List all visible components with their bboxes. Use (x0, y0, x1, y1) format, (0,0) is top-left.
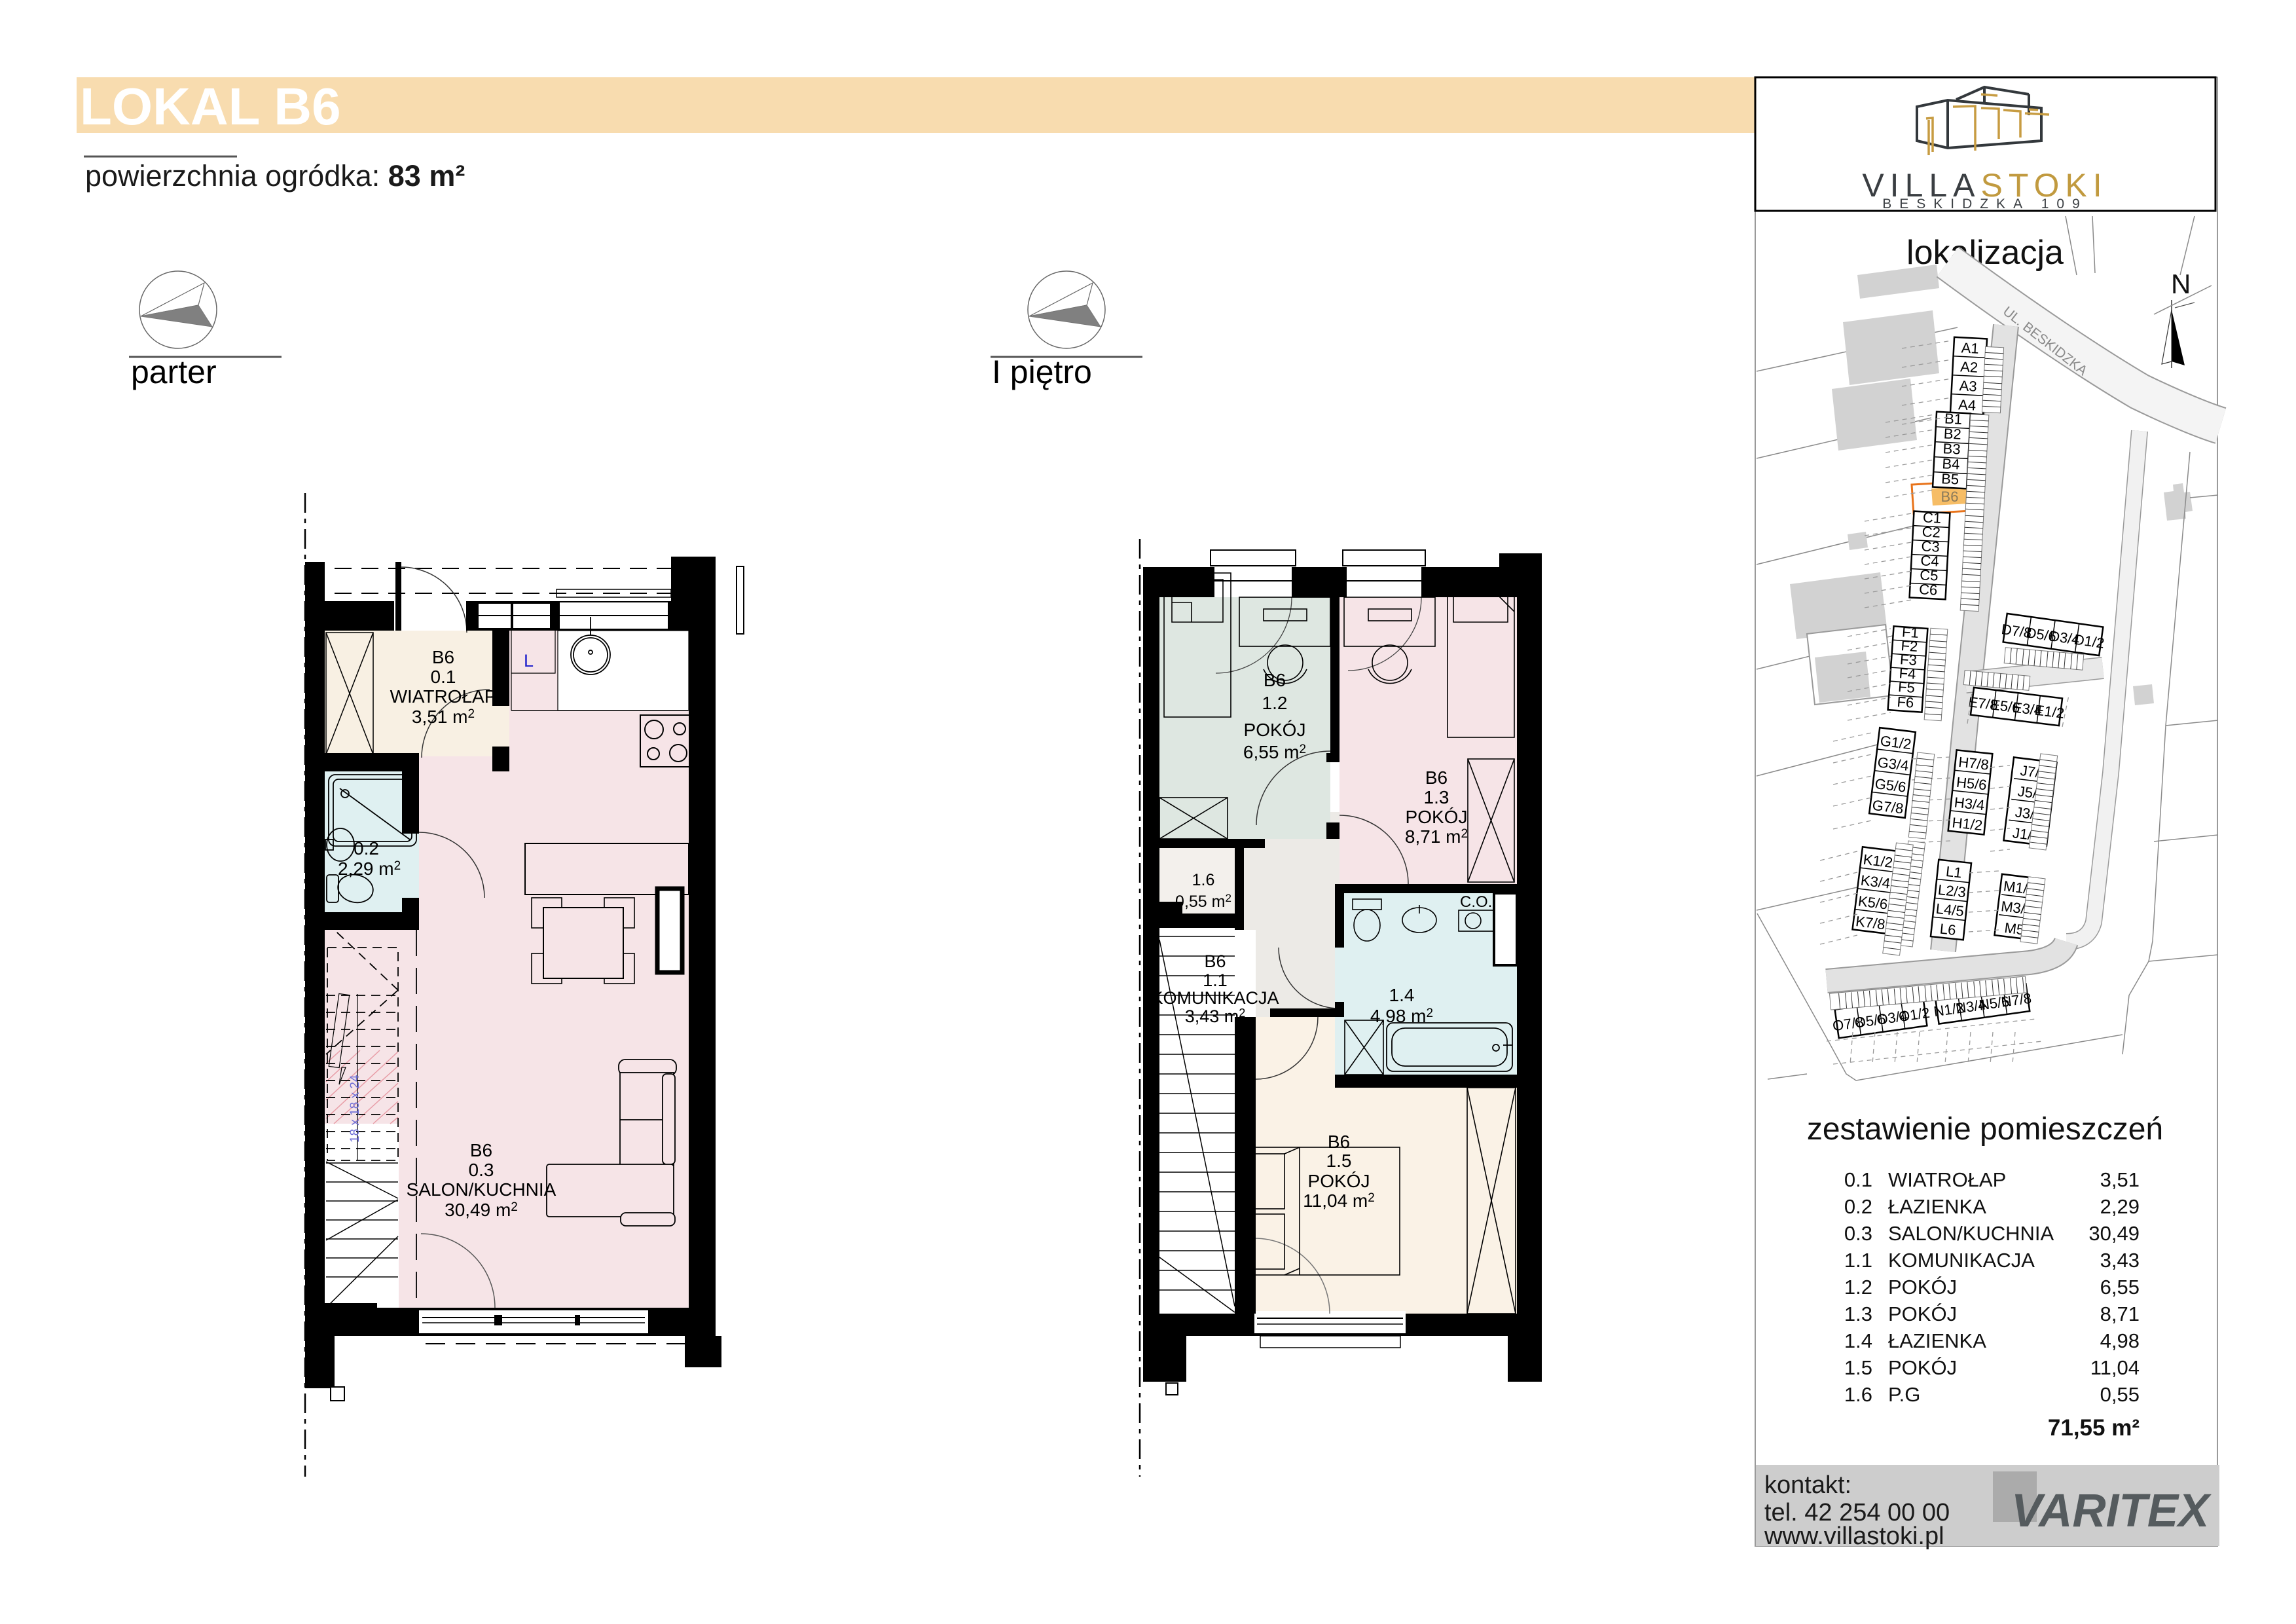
svg-text:1.1: 1.1 (1844, 1249, 1872, 1272)
svg-text:I piętro: I piętro (992, 354, 1092, 390)
svg-text:H3/4: H3/4 (1954, 794, 1986, 814)
svg-text:powierzchnia ogródka: 83 m²: powierzchnia ogródka: 83 m² (85, 159, 465, 193)
svg-text:6,55: 6,55 (2100, 1276, 2140, 1299)
svg-text:L2/3: L2/3 (1937, 881, 1967, 900)
svg-text:0.2: 0.2 (1844, 1195, 1872, 1218)
svg-text:1.5: 1.5 (1844, 1356, 1872, 1379)
svg-text:1.5: 1.5 (1326, 1151, 1352, 1171)
svg-text:ŁAZIENKA: ŁAZIENKA (1888, 1195, 1986, 1218)
svg-text:8,71 m2: 8,71 m2 (1405, 826, 1468, 847)
svg-text:B6: B6 (470, 1140, 492, 1160)
svg-text:3,51 m2: 3,51 m2 (412, 707, 475, 727)
svg-text:B6: B6 (1425, 767, 1448, 788)
svg-text:POKÓJ: POKÓJ (1888, 1302, 1957, 1325)
svg-text:1.6: 1.6 (1844, 1383, 1872, 1406)
svg-text:A3: A3 (1959, 377, 1977, 394)
svg-text:1.4: 1.4 (1389, 985, 1415, 1005)
svg-text:0.3: 0.3 (469, 1160, 494, 1180)
svg-text:L1: L1 (1945, 863, 1963, 881)
svg-text:B6: B6 (432, 647, 454, 667)
svg-text:0.3: 0.3 (1844, 1222, 1872, 1245)
svg-text:L6: L6 (1939, 921, 1957, 938)
svg-text:C.O.: C.O. (1460, 893, 1492, 911)
svg-text:18 x 18 x 24: 18 x 18 x 24 (348, 1075, 362, 1143)
svg-text:KOMUNIKACJA: KOMUNIKACJA (1888, 1249, 2035, 1272)
svg-text:1.1: 1.1 (1203, 970, 1228, 990)
svg-text:SALON/KUCHNIA: SALON/KUCHNIA (1888, 1222, 2054, 1245)
svg-text:0.1: 0.1 (431, 667, 456, 687)
svg-text:A1: A1 (1961, 339, 1979, 356)
svg-text:H1/2: H1/2 (1952, 814, 1984, 834)
svg-text:B5: B5 (1941, 470, 1959, 487)
svg-text:0.2: 0.2 (354, 838, 379, 858)
svg-text:1.6: 1.6 (1192, 871, 1215, 889)
svg-text:3,43: 3,43 (2100, 1249, 2140, 1272)
svg-text:1.2: 1.2 (1844, 1276, 1872, 1299)
svg-text:2,29: 2,29 (2100, 1195, 2140, 1218)
svg-text:4,98: 4,98 (2100, 1329, 2140, 1352)
svg-text:B6: B6 (1204, 951, 1226, 971)
svg-text:1.4: 1.4 (1844, 1329, 1872, 1352)
svg-text:B6: B6 (1941, 489, 1959, 505)
svg-text:3,43 m2: 3,43 m2 (1185, 1006, 1246, 1026)
svg-text:H7/8: H7/8 (1958, 754, 1990, 773)
svg-text:WIATROŁAP: WIATROŁAP (390, 686, 497, 707)
svg-text:F6: F6 (1897, 693, 1914, 711)
svg-text:11,04 m2: 11,04 m2 (1303, 1190, 1375, 1211)
svg-text:www.villastoki.pl: www.villastoki.pl (1764, 1522, 1944, 1550)
svg-text:ŁAZIENKA: ŁAZIENKA (1888, 1329, 1986, 1352)
svg-text:1.3: 1.3 (1424, 787, 1449, 807)
svg-text:POKÓJ: POKÓJ (1308, 1171, 1370, 1191)
svg-text:3,51: 3,51 (2100, 1168, 2140, 1191)
svg-text:P.G: P.G (1888, 1383, 1920, 1406)
svg-text:KOMUNIKACJA: KOMUNIKACJA (1151, 988, 1279, 1008)
svg-text:SALON/KUCHNIA: SALON/KUCHNIA (407, 1179, 556, 1200)
svg-text:BESKIDZKA 109: BESKIDZKA 109 (1882, 196, 2088, 212)
svg-text:0.1: 0.1 (1844, 1168, 1872, 1191)
svg-text:kontakt:: kontakt: (1764, 1471, 1851, 1499)
svg-text:L4/5: L4/5 (1935, 900, 1965, 919)
svg-text:8,71: 8,71 (2100, 1302, 2140, 1325)
svg-text:VARITEX: VARITEX (2011, 1485, 2212, 1537)
svg-text:L: L (524, 651, 534, 671)
svg-text:B6: B6 (1264, 670, 1286, 690)
svg-text:1.2: 1.2 (1262, 693, 1288, 713)
svg-text:C6: C6 (1919, 581, 1938, 598)
svg-text:B6: B6 (1328, 1132, 1350, 1152)
svg-text:71,55 m²: 71,55 m² (2048, 1415, 2140, 1441)
svg-text:30,49 m2: 30,49 m2 (445, 1200, 518, 1220)
svg-text:zestawienie pomieszczeń: zestawienie pomieszczeń (1807, 1112, 2163, 1147)
svg-text:POKÓJ: POKÓJ (1244, 720, 1306, 740)
svg-text:6,55 m2: 6,55 m2 (1243, 742, 1306, 762)
svg-text:POKÓJ: POKÓJ (1888, 1356, 1957, 1379)
svg-text:4,98 m2: 4,98 m2 (1370, 1006, 1433, 1026)
svg-text:A2: A2 (1960, 358, 1978, 375)
svg-text:POKÓJ: POKÓJ (1888, 1276, 1957, 1299)
svg-text:11,04: 11,04 (2090, 1356, 2140, 1379)
svg-text:1.3: 1.3 (1844, 1302, 1872, 1325)
svg-text:2,29 m2: 2,29 m2 (338, 858, 401, 879)
svg-text:0,55: 0,55 (2100, 1383, 2140, 1406)
svg-text:0,55 m2: 0,55 m2 (1175, 892, 1231, 911)
svg-text:30,49: 30,49 (2088, 1222, 2140, 1245)
svg-text:parter: parter (131, 354, 217, 390)
svg-text:H5/6: H5/6 (1956, 774, 1988, 794)
svg-text:LOKAL B6: LOKAL B6 (80, 77, 341, 136)
svg-text:WIATROŁAP: WIATROŁAP (1888, 1168, 2006, 1191)
svg-text:POKÓJ: POKÓJ (1406, 807, 1468, 827)
